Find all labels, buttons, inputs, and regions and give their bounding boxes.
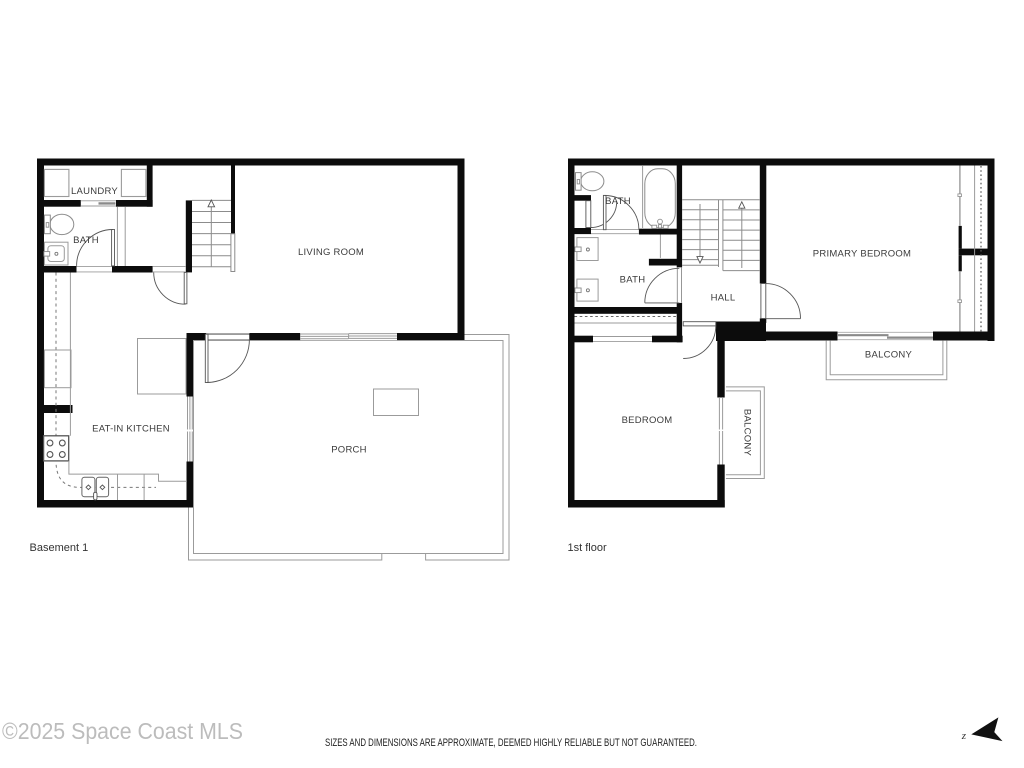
svg-text:BATH: BATH	[605, 196, 631, 207]
svg-text:PORCH: PORCH	[331, 444, 367, 455]
svg-text:BALCONY: BALCONY	[742, 409, 753, 457]
svg-text:©2025 Space Coast MLS: ©2025 Space Coast MLS	[2, 718, 243, 744]
svg-text:EAT-IN KITCHEN: EAT-IN KITCHEN	[92, 423, 170, 434]
svg-text:BALCONY: BALCONY	[865, 349, 913, 360]
svg-text:z: z	[961, 730, 967, 742]
svg-text:LAUNDRY: LAUNDRY	[71, 186, 118, 197]
svg-text:PRIMARY BEDROOM: PRIMARY BEDROOM	[813, 248, 911, 259]
svg-text:HALL: HALL	[711, 292, 736, 303]
svg-text:BATH: BATH	[620, 274, 646, 285]
svg-text:1st floor: 1st floor	[568, 542, 607, 554]
svg-text:BATH: BATH	[73, 235, 99, 246]
svg-text:LIVING ROOM: LIVING ROOM	[298, 247, 364, 258]
svg-text:SIZES AND DIMENSIONS ARE APPRO: SIZES AND DIMENSIONS ARE APPROXIMATE, DE…	[325, 737, 697, 749]
svg-text:BEDROOM: BEDROOM	[622, 415, 673, 426]
svg-text:Basement 1: Basement 1	[30, 542, 89, 554]
